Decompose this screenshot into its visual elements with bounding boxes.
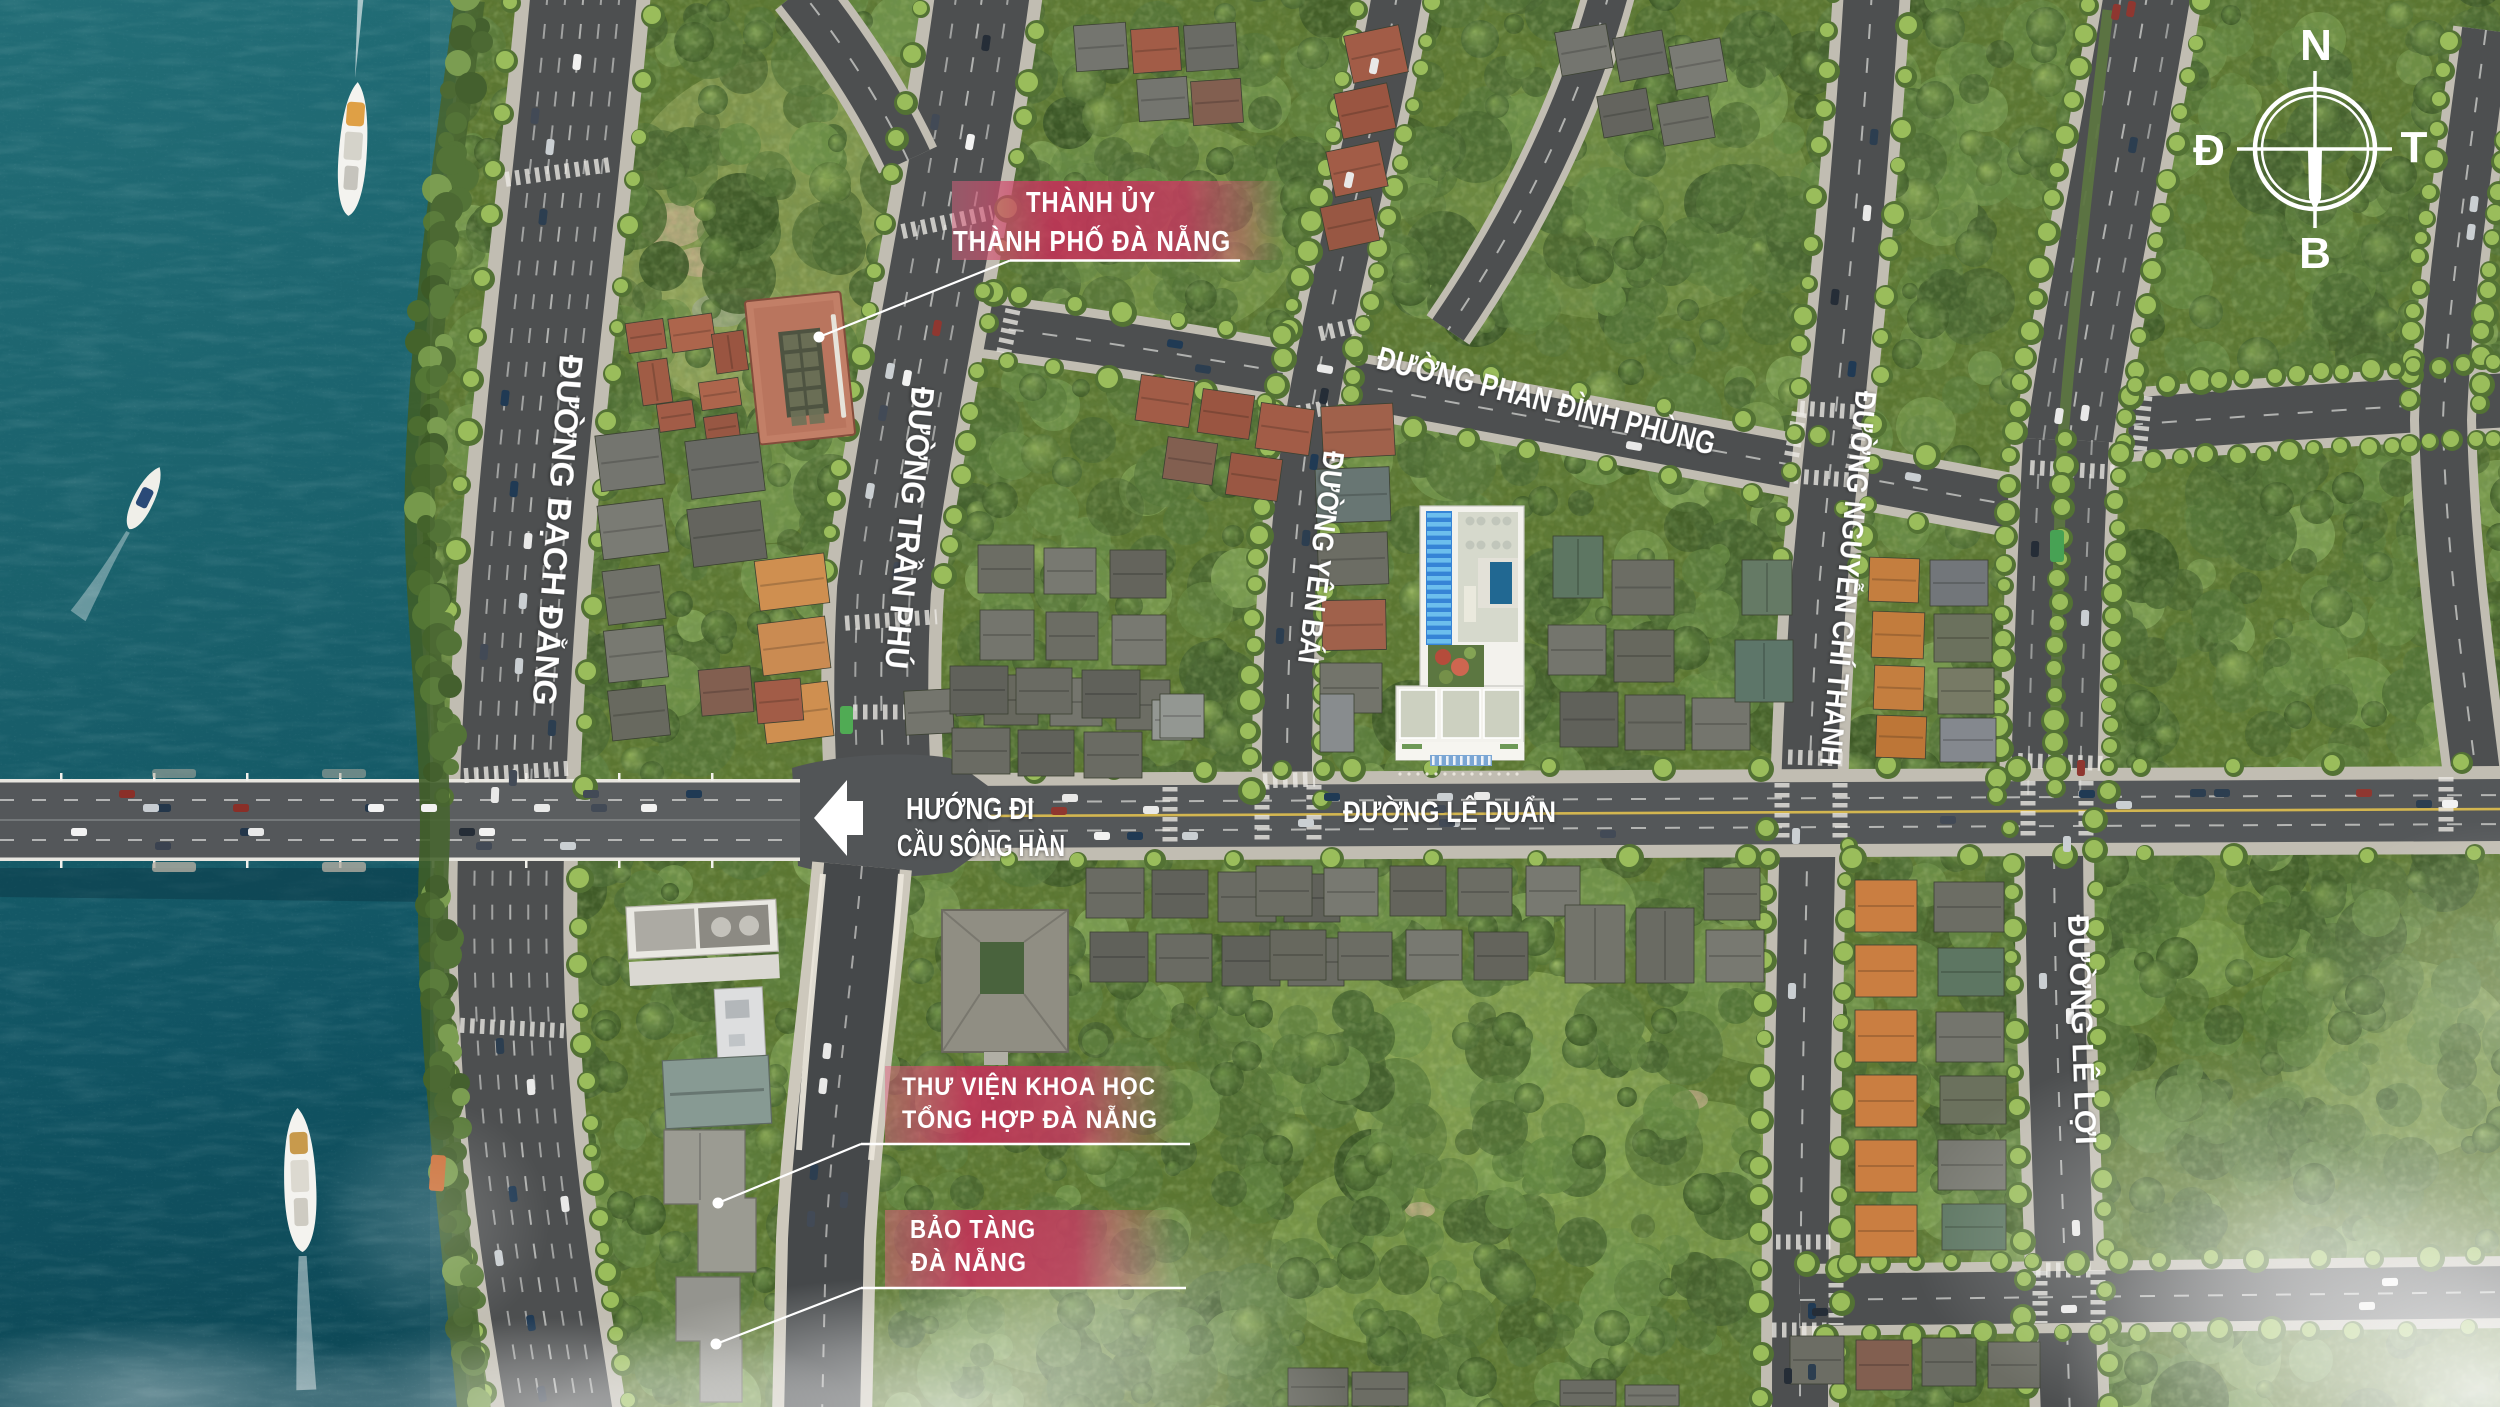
svg-text:TỔNG HỢP ĐÀ NẴNG: TỔNG HỢP ĐÀ NẴNG [902, 1104, 1158, 1134]
svg-text:ĐÀ NẴNG: ĐÀ NẴNG [911, 1247, 1027, 1277]
svg-text:THÀNH PHỐ ĐÀ NẴNG: THÀNH PHỐ ĐÀ NẴNG [953, 223, 1231, 258]
svg-text:B: B [2299, 229, 2331, 278]
svg-text:THƯ VIỆN KHOA HỌC: THƯ VIỆN KHOA HỌC [902, 1071, 1156, 1101]
svg-text:ĐƯỜNG LÊ DUẨN: ĐƯỜNG LÊ DUẨN [1343, 795, 1556, 829]
svg-text:BẢO TÀNG: BẢO TÀNG [910, 1214, 1036, 1244]
svg-text:N: N [2300, 21, 2332, 70]
svg-text:CẦU SÔNG HÀN: CẦU SÔNG HÀN [897, 827, 1065, 863]
svg-text:THÀNH ỦY: THÀNH ỦY [1026, 185, 1156, 219]
svg-text:Đ: Đ [2193, 126, 2225, 175]
svg-text:HƯỚNG ĐI: HƯỚNG ĐI [906, 790, 1034, 826]
svg-text:T: T [2401, 123, 2428, 172]
